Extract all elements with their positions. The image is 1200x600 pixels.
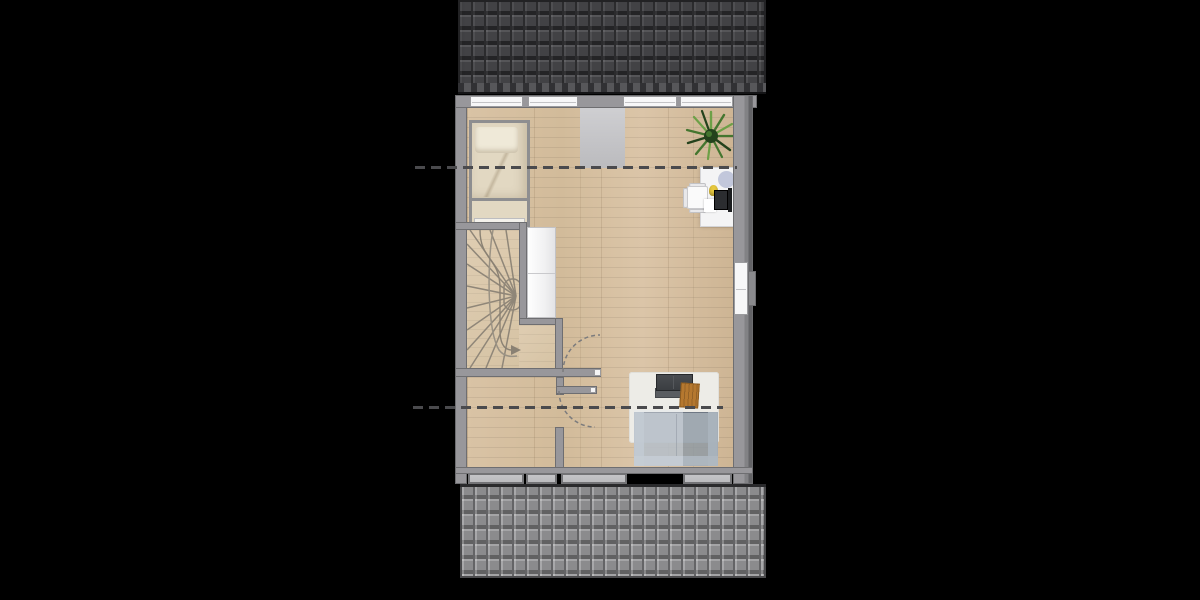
section-line-upper	[415, 166, 737, 169]
door-arc-upper	[563, 335, 600, 372]
door-swings	[0, 0, 1200, 600]
section-line-lower	[413, 406, 723, 409]
floor-plan-canvas	[0, 0, 1200, 600]
door-arc-lower	[559, 391, 595, 427]
